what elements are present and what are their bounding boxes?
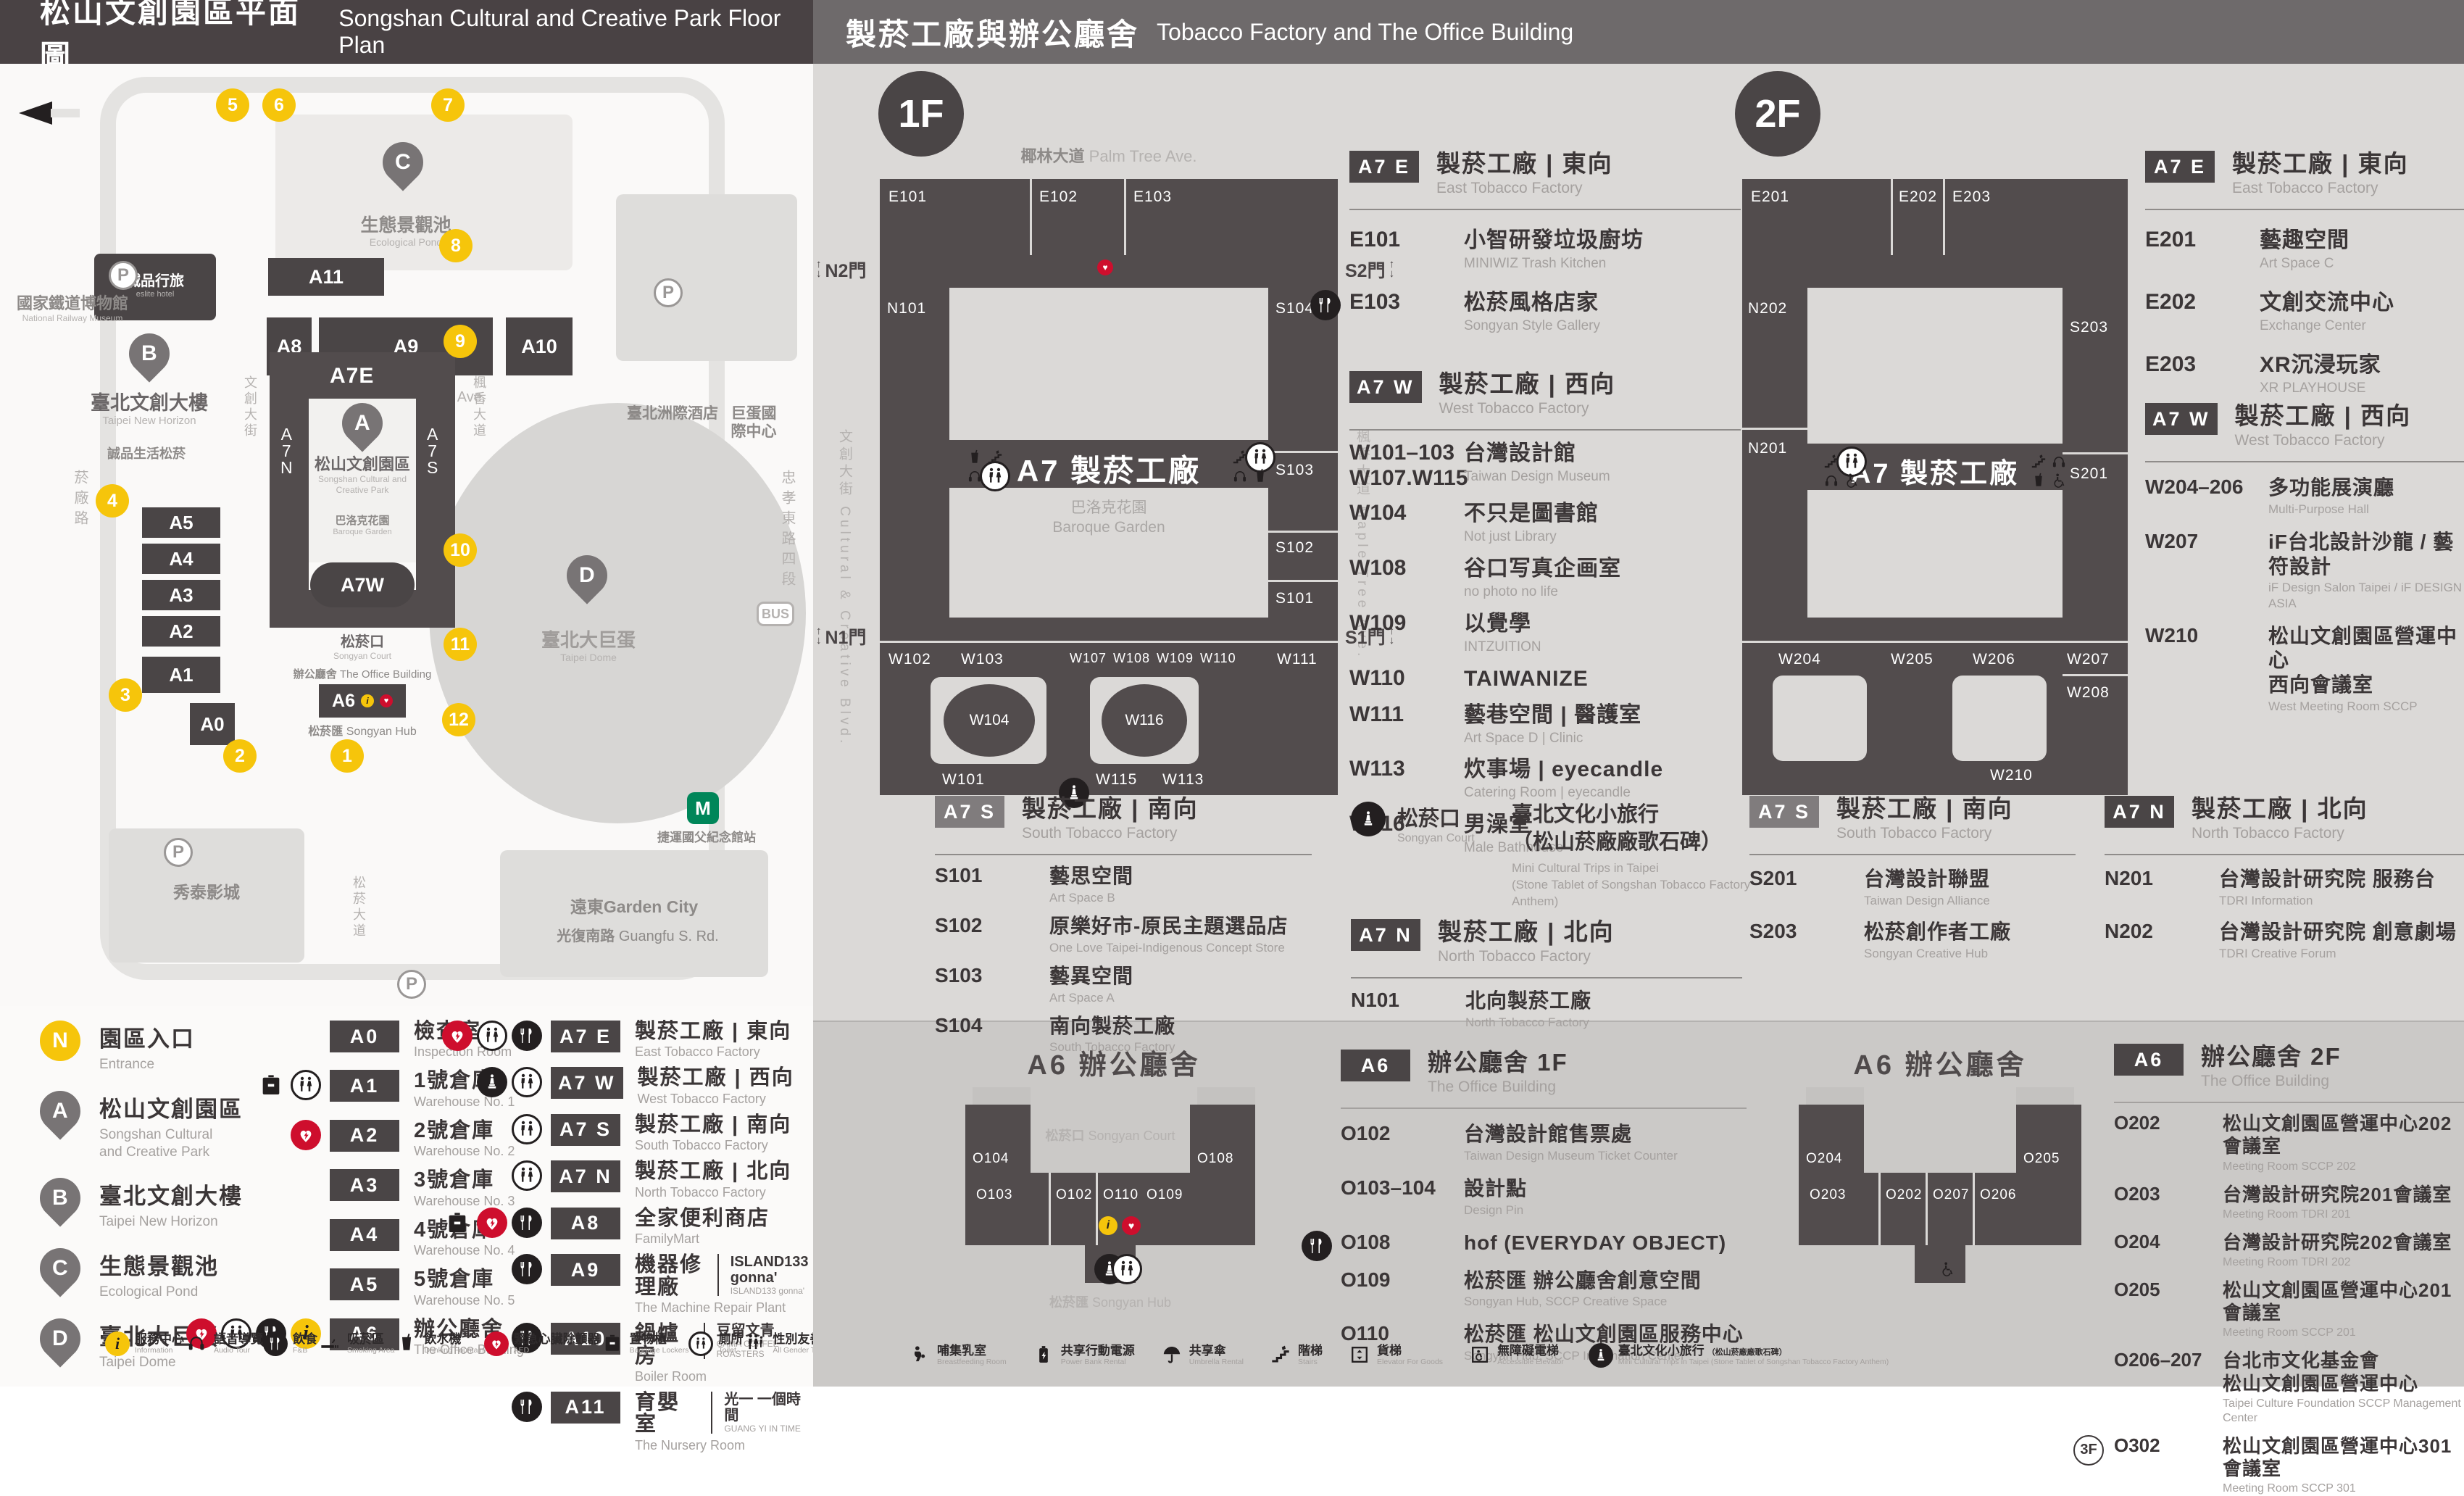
court-code-en: Songyan Court (1397, 832, 1500, 845)
room-name-en: Art Space A (1049, 990, 1133, 1005)
room-row: O203台灣設計研究院201會議室Meeting Room TDRI 201 (2114, 1184, 2464, 1222)
building-a1: A1 (142, 657, 220, 693)
room-name-zh: 台灣設計研究院201會議室 (2223, 1184, 2452, 1206)
building-a7e: A7E (330, 364, 374, 388)
a6-2f-plan: A6 辦公廳舍 O204 O205 O203 O202 O207 O206 (1770, 1042, 2110, 1318)
building-name-en: The Nursery Room (635, 1438, 812, 1453)
facility-icon-slot (1160, 1342, 1184, 1368)
wheelchair-icon (1932, 1254, 1963, 1284)
plan-room-w109: W109 (1157, 651, 1194, 666)
building-a4: A4 (142, 544, 220, 574)
entrance-2: 2 (223, 739, 257, 773)
section-title-en: West Tobacco Factory (2235, 432, 2412, 449)
room-code: O108 (1341, 1231, 1464, 1254)
statue-icon (1353, 804, 1383, 834)
building-a0: A0 (190, 703, 235, 745)
amenity-icon-cluster (1225, 442, 1262, 477)
room-row: E202文創交流中心Exchange Center (2145, 290, 2464, 335)
room-code: N202 (2105, 920, 2219, 943)
mrt-station-label: 捷運國父紀念館站 (657, 831, 756, 845)
room-row: O206–207台北市文化基金會 松山文創園區營運中心Taipei Cultur… (2114, 1350, 2464, 1425)
room-name-en: MINIWIZ Trash Kitchen (1464, 255, 1644, 273)
facility-en: Elevator For Goods (1377, 1358, 1443, 1367)
aed-map-icon: ♥ (1122, 1216, 1141, 1235)
room-code: O206–207 (2114, 1350, 2223, 1371)
room-code: O203 (2114, 1184, 2223, 1205)
hub-label: 松菸匯 Songyan Hub (308, 725, 416, 739)
legend-building-row: A7 E 製菸工廠 | 東向 East Tobacco Factory (551, 1021, 812, 1060)
parking-icon: P (397, 970, 426, 999)
section-2f-a7n: A7 N製菸工廠 | 北向North Tobacco Factory N201台… (2105, 796, 2464, 961)
parking-icon: P (109, 261, 138, 290)
toilet-icon (512, 1160, 542, 1191)
plan-room-s101: S101 (1275, 590, 1314, 607)
right-header: 製菸工廠與辦公廳舍 Tobacco Factory and The Office… (813, 0, 2464, 64)
room-name-en: INTZUITION (1464, 639, 1541, 656)
floor-3f-tag: 3F (2073, 1435, 2104, 1466)
plan-room-o202: O202 (1886, 1187, 1922, 1203)
room-name-en: Meeting Room SCCP 301 (2223, 1482, 2464, 1496)
plan-room-w107: W107 (1070, 651, 1107, 666)
toilet-map-icon (1112, 1254, 1128, 1270)
room-code: W108 (1349, 556, 1464, 581)
legend-point-row: C C 生態景觀池Ecological Pond (40, 1248, 286, 1301)
facility-zh: 吸菸區 (347, 1333, 384, 1347)
baroque-label: 巴洛克花園Baroque Garden (333, 515, 391, 537)
room-row: W109以覺學INTZUITION (1349, 611, 1741, 656)
room-row: O204台灣設計研究院202會議室Meeting Room TDRI 202 (2114, 1231, 2464, 1270)
facility-item: 無障礙電梯Accessible Elevator (1468, 1342, 1564, 1368)
court-label: 松菸口Songyan Court (333, 633, 391, 661)
building-amenity-icons (477, 1067, 542, 1097)
railway-museum-label: 國家鐵道博物館National Railway Museum (17, 294, 128, 324)
building-a11: A11 (268, 258, 384, 296)
a6-plan-title: A6 辦公廳舍 (1853, 1042, 2026, 1082)
fnb-icon (512, 1254, 542, 1284)
eslite-spectrum-label: 誠品生活松菸 (107, 446, 186, 462)
legend-building-row: A7 S 製菸工廠 | 南向 South Tobacco Factory (551, 1114, 812, 1153)
room-row: W113炊事場 | eyecandleCatering Room | eyeca… (1349, 757, 1741, 802)
building-badge: A4 (330, 1219, 399, 1251)
building-badge: A5 (330, 1268, 399, 1300)
left-header: 松山文創園區平面圖 Songshan Cultural and Creative… (0, 0, 813, 64)
facility-item: 語音導覽Audio Tour (184, 1331, 263, 1357)
facility-zh: 臺北文化小旅行 (1618, 1345, 1705, 1358)
section-title-en: The Office Building (2201, 1073, 2342, 1090)
a7s-wing (416, 352, 455, 628)
room-row: W204–206多功能展演廳Multi-Purpose Hall (2145, 475, 2464, 517)
room-code: E202 (2145, 290, 2260, 315)
location-pin-icon: B (40, 1178, 80, 1218)
power-icon (1031, 1342, 1056, 1367)
room-name-en: Meeting Room SCCP 202 (2223, 1160, 2464, 1174)
dome-label: 臺北大巨蛋Taipei Dome (541, 629, 636, 664)
room-name-zh: 台北市文化基金會 松山文創園區營運中心 (2223, 1350, 2464, 1395)
section-title-zh: 製菸工廠 | 南向 (1022, 796, 1199, 822)
room-code: W207 (2145, 530, 2268, 553)
building-name-en: The Machine Repair Plant (635, 1300, 812, 1316)
building-name-en: Boiler Room (635, 1369, 812, 1384)
plan-room-w207: W207 (2067, 651, 2110, 668)
facility-zh: 服務中心 (135, 1333, 184, 1347)
room-row: S201台灣設計聯盟Taiwan Design Alliance (1749, 867, 2076, 908)
park-label: 松山文創園區Songshan Cultural and Creative Par… (315, 455, 410, 495)
building-badge: A11 (551, 1392, 620, 1424)
room-code: S102 (935, 914, 1049, 937)
new-horizon-label: 臺北文創大樓Taipei New Horizon (91, 391, 208, 428)
facility-icon-slot (743, 1331, 767, 1357)
facility-en: Umbrella Rental (1189, 1358, 1244, 1367)
facility-zh: 哺集乳室 (937, 1345, 986, 1358)
plan-room-o109: O109 (1146, 1187, 1183, 1203)
entrance-6: 6 (262, 88, 296, 122)
room-name-zh: TAIWANIZE (1464, 666, 1589, 692)
facility-item: 階梯Stairs (1268, 1342, 1323, 1368)
bus-stop-icon: BUS (757, 602, 794, 626)
facility-extra: （松山菸廠廠歌石碑） (1707, 1348, 1787, 1357)
entrance-5: 5 (216, 88, 249, 122)
section-title-zh: 製菸工廠 | 南向 (1836, 796, 2013, 822)
aed-map-icon: ♥ (1097, 259, 1113, 275)
entrance-7: 7 (431, 88, 465, 122)
room-name-en: Meeting Room TDRI 202 (2223, 1255, 2452, 1270)
room-row: S203松菸創作者工廠Songyan Creative Hub (1749, 920, 2076, 961)
section-badge: A7 N (1351, 919, 1420, 951)
room-name-en: Multi-Purpose Hall (2268, 502, 2394, 517)
room-code: O204 (2114, 1231, 2223, 1253)
building-a6: A6i♥ (319, 684, 406, 718)
room-name-en: Design Pin (1464, 1202, 1527, 1218)
building-amenity-icons (442, 1208, 542, 1238)
cc-blvd-plan-label: 文創大街 Cultural & Creative Blvd. (835, 429, 854, 747)
facility-zh: 無障礙電梯 (1497, 1345, 1559, 1358)
north-wing-block (880, 288, 949, 647)
room-name-en: Catering Room | eyecandle (1464, 784, 1663, 802)
room-name-zh: 北向製菸工廠 (1465, 989, 1591, 1013)
section-1f-a7n: A7 N製菸工廠 | 北向North Tobacco Factory N101北… (1351, 919, 1742, 1030)
pin-b: B (129, 333, 170, 374)
plan-room-s102: S102 (1275, 539, 1314, 557)
songyan-court-entry: 松菸口Songyan Court 臺北文化小旅行 （松山菸廠廠歌石碑）Mini … (1351, 802, 1757, 910)
room-name-en: Meeting Room TDRI 201 (2223, 1208, 2452, 1222)
west-courtyard (1952, 676, 2047, 761)
room-row: W108谷口写真企画室no photo no life (1349, 556, 1741, 601)
facility-item: 哺集乳室Breastfeeding Room (907, 1342, 1007, 1368)
building-a7w: A7W (310, 562, 415, 607)
room-name-en: TDRI Information (2219, 893, 2436, 908)
room-name-zh: 藝巷空間 | 醫護室 (1464, 702, 1641, 728)
room-code: O102 (1341, 1122, 1464, 1145)
facility-icon-slot (600, 1331, 625, 1357)
west-courtyard (1773, 676, 1867, 761)
plan-room-w111: W111 (1277, 651, 1318, 668)
plan-room-o207: O207 (1933, 1187, 1969, 1203)
accessible-lift-icon (1468, 1342, 1492, 1367)
entrance-11: 11 (444, 628, 477, 661)
park-map: 誠品行旅eslite hotel 國家鐵道博物館National Railway… (0, 64, 813, 1006)
section-badge: A7 W (2145, 403, 2218, 435)
a6-1f-plan: A6 辦公廳舍 O104 O108 松菸口 Songyan Court O103… (922, 1042, 1306, 1318)
section-badge: A7 W (1349, 371, 1422, 403)
building-amenity-icons (512, 1160, 542, 1191)
building-badge: A3 (330, 1169, 399, 1201)
building-name-zh: 3號倉庫 (414, 1169, 515, 1191)
room-name-zh: 松山文創園區營運中心 西向會議室 (2268, 624, 2464, 697)
room-name-zh: 原樂好市-原民主題選品店 (1049, 914, 1288, 939)
stairs-icon (1268, 1342, 1293, 1367)
locker-icon (442, 1208, 473, 1238)
toilet-icon (477, 1021, 507, 1051)
facility-zh: 廁所 (718, 1333, 743, 1347)
building-amenity-icons (291, 1120, 321, 1150)
plan-room-o205: O205 (2023, 1151, 2060, 1167)
facility-zh: 共享傘 (1189, 1345, 1226, 1358)
room-name-en: Taiwan Design Alliance (1864, 893, 1990, 908)
room-name-zh: 松菸風格店家 (1464, 290, 1600, 316)
breastfeeding-icon (907, 1342, 932, 1367)
room-name-zh: 台灣設計館 (1464, 441, 1610, 467)
building-a2: A2 (142, 616, 220, 647)
section-badge: A6 (1341, 1050, 1410, 1081)
facility-item: i 服務中心Information (105, 1331, 184, 1356)
eslite-hotel-en: eslite hotel (126, 290, 184, 299)
room-name-zh: 台灣設計研究院 服務台 (2219, 867, 2436, 892)
toilet-icon (512, 1067, 542, 1097)
pin-c: C (383, 142, 423, 183)
facility-item: 貨梯Elevator For Goods (1347, 1342, 1443, 1368)
plan-room-w210: W210 (1990, 767, 2033, 784)
facility-en: Stairs (1298, 1358, 1323, 1367)
legend-building-row: A7 N 製菸工廠 | 北向 North Tobacco Factory (551, 1160, 812, 1200)
facility-zh: 緊急心臟除顫器 (514, 1333, 600, 1347)
room-code: S203 (1749, 920, 1864, 943)
fnb-icon (512, 1021, 542, 1051)
room-name-en: iF Design Salon Taipei / iF DESIGN ASIA (2268, 580, 2464, 611)
icc-hotel-label: 臺北洲際酒店 (627, 404, 718, 423)
section-2f-a7e: A7 E製菸工廠 | 東向East Tobacco Factory E201藝趣… (2145, 151, 2464, 397)
room-row: S102原樂好市-原民主題選品店One Love Taipei-Indigeno… (935, 914, 1312, 955)
info-map-icon: i (1099, 1216, 1117, 1235)
room-code: S103 (935, 964, 1049, 987)
room-code: N101 (1351, 989, 1465, 1012)
room-name-zh: 松山文創園區營運中心201會議室 (2223, 1279, 2464, 1324)
audio-icon (184, 1331, 209, 1355)
room-row: E203XR沉浸玩家XR PLAYHOUSE (2145, 352, 2464, 397)
room-row: S101藝思空間Art Space B (935, 864, 1312, 905)
room-name-zh: 谷口写真企画室 (1464, 556, 1621, 582)
room-name-en: Songyan Creative Hub (1864, 946, 2011, 961)
building-name-en: North Tobacco Factory (635, 1185, 791, 1200)
building-amenity-icons (442, 1021, 542, 1051)
toilet-icon (1112, 1254, 1142, 1284)
yanchang-rd-label: 菸廠路 (70, 470, 91, 531)
room-name-zh: 松山文創園區營運中心202會議室 (2223, 1113, 2464, 1158)
facility-icon-slot (1347, 1342, 1372, 1368)
room-row: O205松山文創園區營運中心201會議室Meeting Room SCCP 20… (2114, 1279, 2464, 1340)
building-name-en: FamilyMart (635, 1231, 770, 1247)
court-name-en: Mini Cultural Trips in Taipei (Stone Tab… (1512, 860, 1757, 910)
room-row: W207iF台北設計沙龍 / 藝符設計iF Design Salon Taipe… (2145, 530, 2464, 611)
room-name-en: Meeting Room SCCP 201 (2223, 1326, 2464, 1340)
room-name-zh: 台灣設計研究院 創意劇場 (2219, 920, 2457, 944)
brand-en: ISLAND133 gonna' (731, 1286, 812, 1296)
building-name-zh: 製菸工廠 | 北向 (635, 1160, 791, 1182)
building-badge: A7 S (551, 1114, 620, 1146)
floor-2f-plan: E201 E202 E203 N202 N201 S203 S201 A7 製菸… (1742, 139, 2128, 795)
aed-icon (291, 1120, 321, 1150)
room-code: E101 (1349, 228, 1464, 253)
fnb-icon (512, 1392, 542, 1422)
legend-point-zh: 園區入口 (99, 1021, 195, 1053)
room-name-en: Taipei Culture Foundation SCCP Managemen… (2223, 1397, 2464, 1426)
wheelchair-icon (1836, 465, 1867, 496)
room-name-zh: 不只是圖書館 (1464, 501, 1599, 527)
statue-icon (1589, 1343, 1613, 1368)
plan-room-n101: N101 (887, 300, 926, 317)
section-title-zh: 製菸工廠 | 東向 (1436, 151, 1613, 177)
north-arrow-icon (19, 101, 52, 125)
room-icons (1302, 1231, 1332, 1261)
building-a7n: A 7 N (280, 426, 294, 476)
building-a3: A3 (142, 580, 220, 610)
building-name-en: Warehouse No. 3 (414, 1194, 515, 1209)
building-badge: A1 (330, 1070, 399, 1102)
statue-map-icon (1094, 1254, 1110, 1270)
room-row: 3FO302松山文創園區營運中心301會議室Meeting Room SCCP … (2114, 1435, 2464, 1496)
section-title-zh: 製菸工廠 | 北向 (1438, 919, 1615, 945)
room-name-en: Art Space C (2260, 255, 2349, 273)
room-code: W111 (1349, 702, 1464, 728)
facility-icon-slot (394, 1331, 419, 1357)
building-badge: A8 (551, 1208, 620, 1239)
room-row: W110TAIWANIZE (1349, 666, 1741, 692)
room-code: S101 (935, 864, 1049, 887)
plan-room-s103: S103 (1275, 462, 1314, 479)
parking-icon: P (654, 278, 683, 307)
room-code: W113 (1349, 757, 1464, 782)
room-code: W210 (2145, 624, 2268, 647)
section-title-zh: 製菸工廠 | 西向 (1439, 371, 1616, 397)
room-name-en: North Tobacco Factory (1465, 1015, 1591, 1030)
facility-icon-slot (184, 1331, 209, 1357)
plan-room-w103: W103 (961, 651, 1004, 668)
showtime-label: 秀泰影城 (173, 883, 240, 903)
room-name-en: XR PLAYHOUSE (2260, 380, 2381, 397)
toilet-icon (688, 1331, 713, 1356)
fnb-icon (263, 1331, 288, 1356)
a6-bottom-bar (1799, 1173, 2081, 1245)
gate-n2: ↑↓N2門 (816, 257, 866, 283)
section-title-en: North Tobacco Factory (1438, 948, 1615, 965)
room-name-zh: 台灣設計聯盟 (1864, 867, 1990, 892)
plan-room-o110: O110 (1103, 1187, 1139, 1203)
section-1f-a7w: A7 W製菸工廠 | 西向West Tobacco Factory W101–1… (1349, 371, 1741, 857)
section-title-en: South Tobacco Factory (1022, 825, 1199, 842)
legend-point-en: Entrance (99, 1056, 195, 1073)
aed-icon (442, 1021, 473, 1051)
fnb-icon (512, 1208, 542, 1238)
room-row: E101小智研發垃圾廚坊MINIWIZ Trash Kitchen (1349, 228, 1741, 273)
guangfu-rd-label: 光復南路 Guangfu S. Rd. (557, 928, 718, 945)
building-name-en: Warehouse No. 4 (414, 1243, 515, 1258)
garden-city-label: 遠東Garden City (570, 897, 698, 918)
facility-zh: 飲水機 (424, 1333, 461, 1347)
room-code: O302 (2114, 1435, 2223, 1457)
room-name-en: West Meeting Room SCCP (2268, 699, 2464, 714)
legend-building-row: A7 W 製菸工廠 | 西向 West Tobacco Factory (551, 1067, 812, 1106)
plan-room-e103: E103 (1133, 188, 1172, 206)
facility-item: 飲食F&B (263, 1331, 317, 1356)
facility-en: Power Bank Rental (1061, 1358, 1135, 1367)
plan-room-w206: W206 (1973, 651, 2015, 668)
section-title-en: The Office Building (1428, 1079, 1568, 1096)
maple-ave-label: 楓香大道 (470, 375, 488, 439)
entrance-marker-icon: N (40, 1021, 80, 1061)
facility-icon-slot (688, 1331, 713, 1356)
room-name-zh: 松菸創作者工廠 (1864, 920, 2011, 944)
facility-icon-slot (1468, 1342, 1492, 1368)
left-title-en: Songshan Cultural and Creative Park Floo… (338, 5, 813, 59)
room-name-zh: 台灣設計館售票處 (1464, 1122, 1678, 1147)
facility-en: F&B (293, 1347, 317, 1355)
room-name-en: Songyan Hub, SCCP Creative Space (1464, 1294, 1702, 1309)
building-name-zh: 機器修理廠 (635, 1254, 706, 1298)
building-amenity-icons (512, 1392, 542, 1422)
plan-room-o203: O203 (1810, 1187, 1846, 1203)
building-name-zh: 育嬰室 (635, 1392, 699, 1436)
section-1f-a7s: A7 S製菸工廠 | 南向South Tobacco Factory S101藝… (935, 796, 1312, 1055)
plan-room-e201: E201 (1751, 188, 1789, 206)
room-row: W210松山文創園區營運中心 西向會議室West Meeting Room SC… (2145, 624, 2464, 714)
room-name-en: Art Space B (1049, 890, 1133, 905)
water-icon (394, 1331, 419, 1355)
room-row: N201台灣設計研究院 服務台TDRI Information (2105, 867, 2464, 908)
facility-icon-slot (484, 1331, 509, 1356)
facility-en: Smoking Area (347, 1347, 394, 1355)
plan-room-w110: W110 (1200, 651, 1236, 666)
room-name-zh: 小智研發垃圾廚坊 (1464, 228, 1644, 254)
locker-icon (256, 1070, 286, 1100)
facility-item: 緊急心臟除顫器AED (484, 1331, 600, 1356)
room-code: N201 (2105, 867, 2219, 890)
plan-room-s203: S203 (2070, 319, 2108, 336)
plan-room-n201: N201 (1748, 440, 1787, 457)
room-code: W204–206 (2145, 475, 2268, 499)
building-name-zh: 全家便利商店 (635, 1208, 770, 1229)
location-pin-icon: D (40, 1318, 80, 1359)
building-badge: A0 (330, 1021, 399, 1052)
location-pin-icon: A (40, 1091, 80, 1131)
room-code: E203 (2145, 352, 2260, 378)
locker-icon (600, 1331, 625, 1355)
plan-room-o104: O104 (973, 1151, 1009, 1167)
plan-room-w204: W204 (1778, 651, 1821, 668)
room-name-en: no photo no life (1464, 583, 1621, 601)
building-name-en: Warehouse No. 5 (414, 1293, 515, 1308)
building-name-en: West Tobacco Factory (638, 1092, 794, 1107)
room-row: N101北向製菸工廠North Tobacco Factory (1351, 989, 1742, 1030)
building-badge: A7 W (551, 1067, 623, 1099)
room-name-zh: 設計點 (1464, 1176, 1527, 1201)
building-name-zh: 製菸工廠 | 東向 (635, 1021, 791, 1042)
plan-room-w104-hall: W104 (944, 684, 1035, 757)
room-name-zh: 多功能展演廳 (2268, 475, 2394, 500)
facility-icon-slot (1031, 1342, 1056, 1368)
facility-item: 飲水機Drinking Fountain (394, 1331, 483, 1357)
plan-room-o204: O204 (1806, 1151, 1842, 1167)
building-name-zh: 2號倉庫 (414, 1120, 515, 1142)
building-badge: A7 E (551, 1021, 620, 1052)
